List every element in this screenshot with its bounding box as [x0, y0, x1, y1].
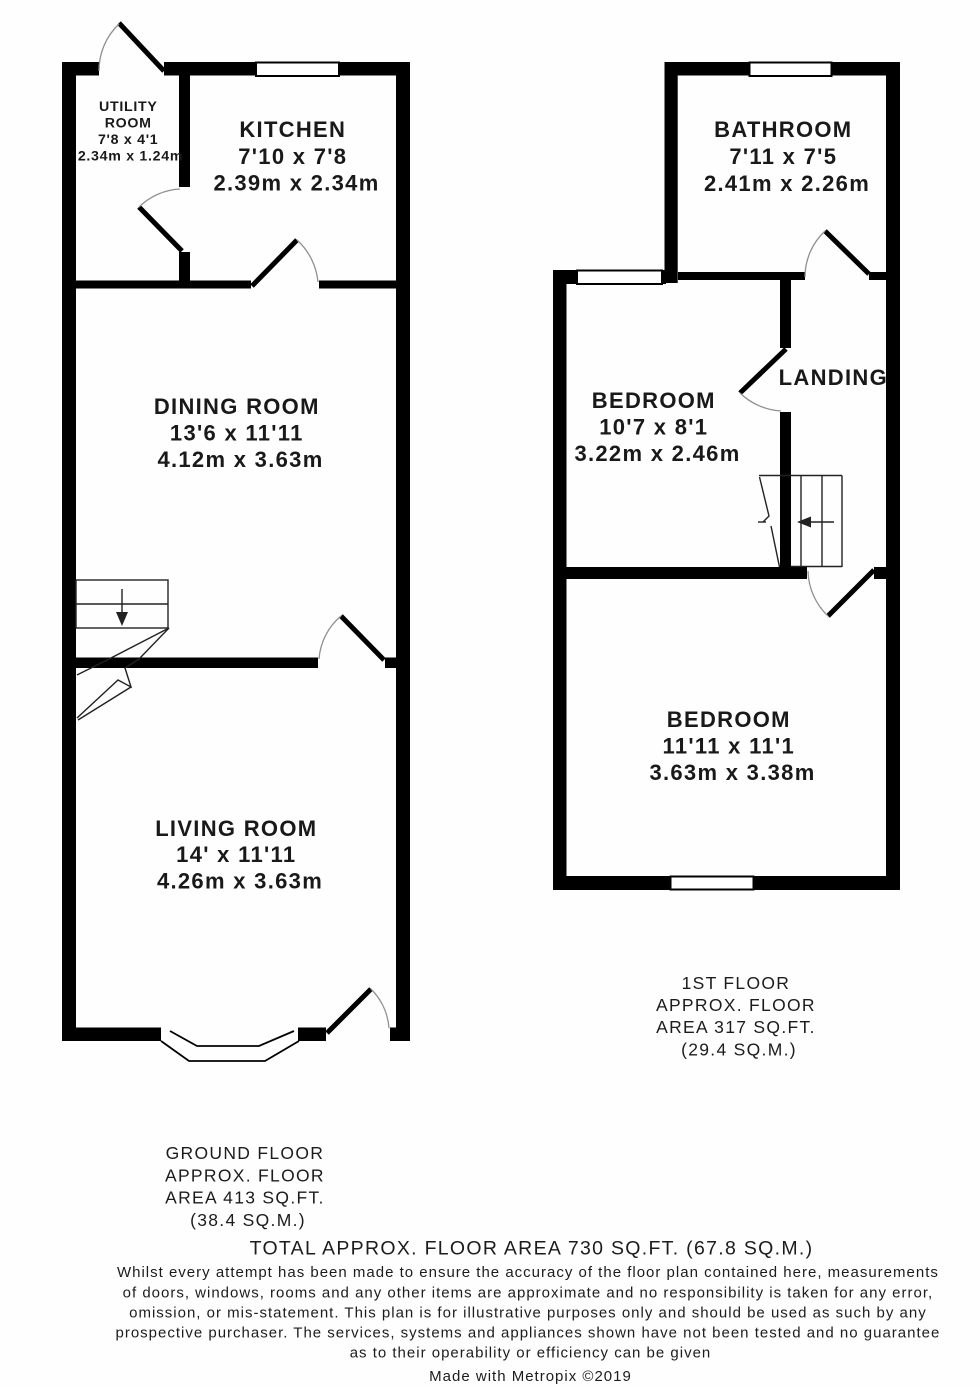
svg-text:LIVING ROOM 14' x 11'11 4.: LIVING ROOM 14' x 11'11 4.26m x 3.63m	[155, 816, 325, 894]
svg-text:LANDING: LANDING	[779, 365, 888, 390]
svg-text:DINING ROOM 13'6 x 11'11 4: DINING ROOM 13'6 x 11'11 4.12m x 3.63m	[154, 394, 327, 472]
svg-text:Made with Metropix ©2019: Made with Metropix ©2019	[429, 1368, 632, 1385]
svg-text:TOTAL APPROX. FLOOR AREA 730 S: TOTAL APPROX. FLOOR AREA 730 SQ.FT. (67.…	[250, 1238, 814, 1260]
svg-text:BEDROOM 11'11 x 11'1 3.63m: BEDROOM 11'11 x 11'1 3.63m x 3.38m	[649, 707, 815, 785]
svg-text:BEDROOM 10'7 x 8'1 3.22m x: BEDROOM 10'7 x 8'1 3.22m x 2.46m	[574, 388, 740, 466]
